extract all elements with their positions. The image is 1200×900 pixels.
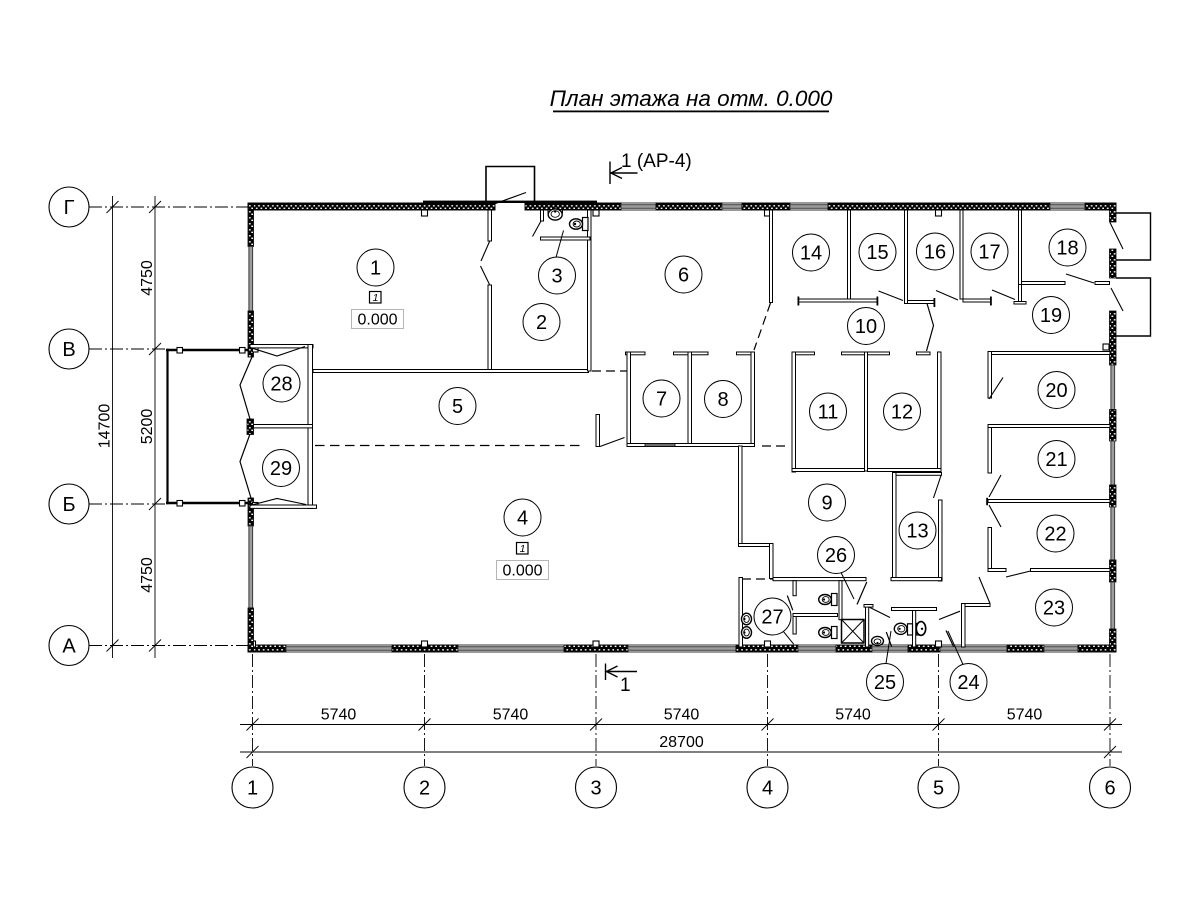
svg-text:1: 1 [620, 675, 631, 696]
svg-text:8: 8 [717, 389, 728, 411]
svg-text:3: 3 [551, 266, 562, 288]
svg-text:27: 27 [761, 607, 783, 629]
svg-text:25: 25 [874, 672, 896, 694]
svg-text:21: 21 [1045, 449, 1067, 471]
svg-text:5740: 5740 [1007, 707, 1043, 724]
svg-text:5740: 5740 [835, 707, 871, 724]
svg-text:2: 2 [536, 312, 547, 334]
svg-text:1 (АР-4): 1 (АР-4) [621, 151, 692, 172]
svg-text:4750: 4750 [139, 557, 156, 593]
svg-text:3: 3 [590, 778, 601, 800]
svg-text:16: 16 [924, 242, 946, 264]
svg-text:13: 13 [906, 521, 928, 543]
svg-text:28700: 28700 [659, 734, 704, 751]
svg-text:План этажа на отм. 0.000: План этажа на отм. 0.000 [550, 86, 833, 111]
svg-text:19: 19 [1040, 305, 1062, 327]
svg-text:17: 17 [978, 242, 1000, 264]
svg-text:15: 15 [866, 242, 888, 264]
svg-text:24: 24 [957, 672, 979, 694]
svg-text:6: 6 [1104, 778, 1115, 800]
svg-text:7: 7 [656, 389, 667, 411]
svg-text:22: 22 [1044, 524, 1066, 546]
svg-text:26: 26 [825, 545, 847, 567]
svg-text:5200: 5200 [139, 409, 156, 445]
svg-text:5: 5 [452, 396, 463, 418]
svg-text:Г: Г [64, 197, 75, 219]
svg-text:28: 28 [270, 374, 292, 396]
svg-text:11: 11 [818, 402, 839, 424]
svg-text:6: 6 [678, 265, 689, 287]
svg-text:18: 18 [1056, 238, 1078, 260]
svg-text:Б: Б [62, 494, 75, 516]
svg-text:2: 2 [419, 778, 430, 800]
svg-text:5: 5 [933, 778, 944, 800]
svg-text:5740: 5740 [321, 707, 357, 724]
svg-text:20: 20 [1045, 380, 1067, 402]
svg-text:1: 1 [370, 258, 381, 280]
svg-text:12: 12 [891, 402, 913, 424]
svg-text:4750: 4750 [139, 260, 156, 296]
svg-text:23: 23 [1043, 598, 1065, 620]
svg-text:14: 14 [800, 243, 822, 265]
svg-text:14700: 14700 [97, 404, 114, 449]
svg-text:0.000: 0.000 [502, 563, 542, 580]
svg-text:1: 1 [520, 543, 526, 555]
svg-text:4: 4 [762, 778, 773, 800]
svg-text:А: А [62, 636, 76, 658]
svg-text:9: 9 [821, 493, 832, 515]
svg-text:0.000: 0.000 [357, 312, 397, 329]
svg-text:1: 1 [373, 292, 379, 304]
svg-text:4: 4 [517, 508, 528, 530]
svg-text:В: В [62, 339, 75, 361]
svg-text:1: 1 [247, 778, 258, 800]
svg-text:10: 10 [855, 316, 877, 338]
svg-text:5740: 5740 [664, 707, 700, 724]
svg-text:5740: 5740 [493, 707, 529, 724]
svg-text:29: 29 [270, 458, 292, 480]
